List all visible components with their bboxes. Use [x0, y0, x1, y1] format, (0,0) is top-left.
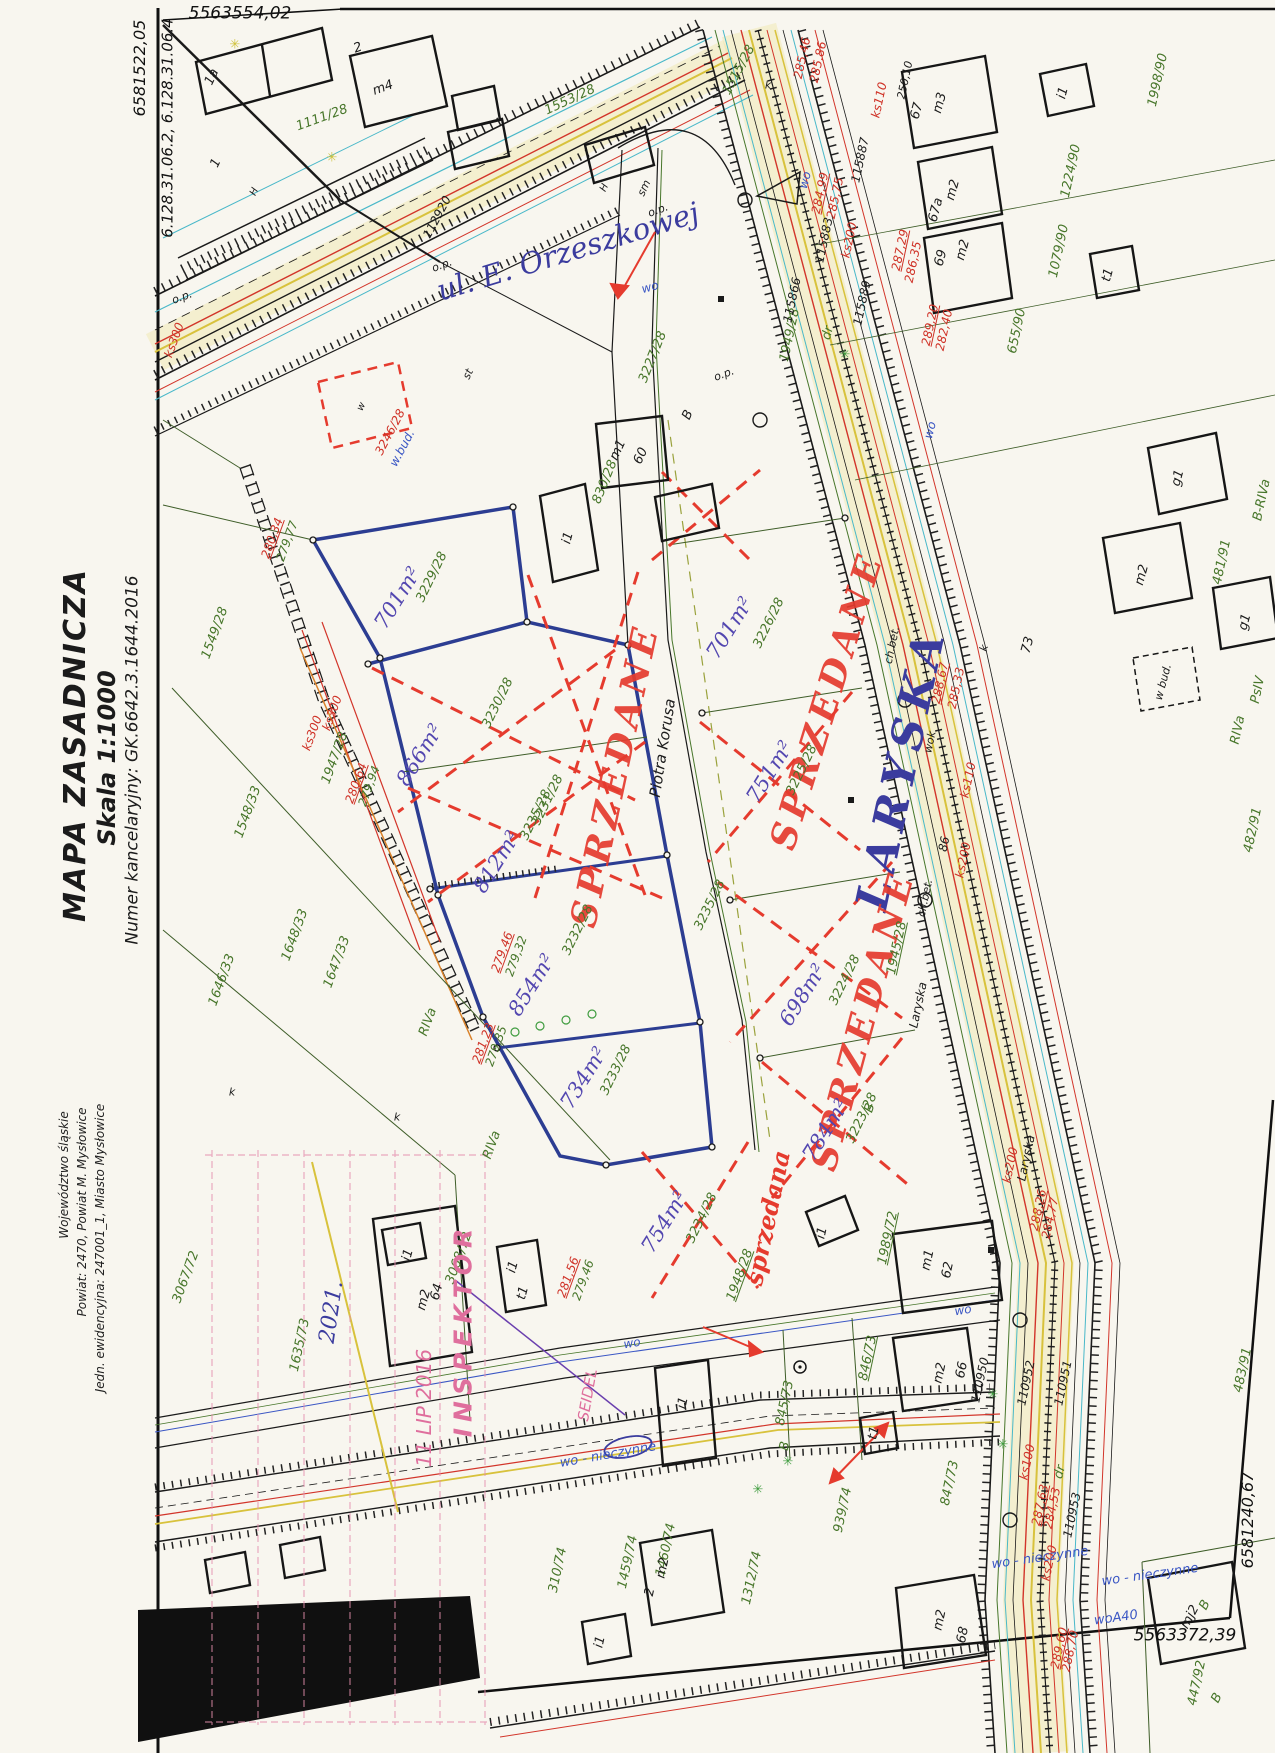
- survey-point: 115889: [851, 279, 872, 326]
- sheet-codes-left: 6.128.31.06.2, 6.128.31.06.4: [161, 18, 176, 237]
- land-use: B: [1209, 1691, 1225, 1705]
- parcel-number: 1459/74: [616, 1534, 640, 1590]
- map-symbol: w: [356, 401, 369, 413]
- land-use: RIVa: [417, 1006, 439, 1038]
- utility-label: ks110: [869, 81, 888, 119]
- building-label: m2: [654, 1556, 671, 1579]
- tree-symbol: ✳: [998, 1439, 1009, 1452]
- parcel-number: 1947/28: [320, 730, 351, 785]
- map-symbol: k: [394, 1112, 400, 1123]
- parcel-number: 310/74: [547, 1546, 569, 1593]
- land-use: B-RIVa: [1251, 478, 1273, 522]
- parcel-number: 481/91: [1211, 538, 1233, 585]
- parcel-number: 1312/74: [740, 1550, 764, 1606]
- map-symbol: 86: [937, 835, 952, 852]
- utility-label: wo: [797, 170, 813, 190]
- map-scale: Skala 1:1000: [95, 670, 119, 845]
- building-label: m3: [931, 91, 949, 115]
- map-annotation-layer: 5563554,026581522,056.128.31.06.2, 6.128…: [0, 0, 1275, 1753]
- land-use: B: [778, 1440, 793, 1451]
- utility-label: wo: [640, 279, 660, 295]
- parcel-number: 1635/73: [288, 1317, 312, 1373]
- area-label: 866m²: [393, 720, 447, 789]
- building-label: g1: [1237, 612, 1254, 631]
- building-label: m2: [931, 1361, 948, 1384]
- building-label: t1: [515, 1285, 531, 1301]
- tree-symbol: ✳: [988, 1389, 999, 1402]
- parcel-number: 482/91: [1242, 806, 1264, 853]
- utility-label: wo: [623, 1336, 642, 1351]
- area-label: 754m²: [638, 1187, 692, 1256]
- stamp-inspektor: INSPEKTOR: [451, 1223, 476, 1438]
- map-symbol: wok: [922, 730, 937, 754]
- parcel-number: 1549/28: [200, 605, 231, 660]
- parcel-number: 1646/33: [207, 952, 238, 1007]
- map-symbol: k: [229, 1087, 235, 1098]
- survey-point: 115887: [849, 136, 870, 183]
- area-label: 698m²: [776, 960, 830, 1029]
- map-symbol: k: [765, 80, 771, 91]
- building-label: 1a: [203, 67, 222, 87]
- parcel-number: 447/92: [1186, 1659, 1208, 1706]
- parcel-number: 1998/90: [1146, 52, 1170, 108]
- parcel-number: 846/73: [857, 1334, 879, 1381]
- parcel-number: 483/91: [1232, 1346, 1254, 1393]
- utility-label: wo: [954, 1303, 973, 1318]
- building-label: t1: [1100, 267, 1116, 283]
- street-name-laryska-small: Laryska: [907, 981, 928, 1029]
- municipality: Jedn. ewidencyjna: 247001_1, Miasto Mysł…: [94, 1104, 106, 1393]
- building-label: 69: [933, 248, 950, 267]
- doc-number: Numer kancelaryjny: GK.6642.3.1644.2016: [125, 575, 142, 944]
- corner-coord-right-bottom: 6581240,67: [1240, 1472, 1256, 1569]
- building-label: m2: [954, 238, 972, 262]
- parcel-number: 3227/28: [637, 330, 669, 385]
- building-label: 67a: [927, 196, 946, 223]
- building-label: i1: [505, 1260, 521, 1275]
- parcel-number: 1553/28: [543, 83, 597, 118]
- survey-point: 110952: [1015, 1359, 1036, 1406]
- map-title: MAPA ZASADNICZA: [61, 568, 91, 922]
- land-use: RIVa: [1229, 715, 1248, 746]
- utility-label: ks300: [320, 694, 344, 732]
- parcel-number: 1224/90: [1059, 143, 1083, 199]
- map-symbol: st: [461, 367, 475, 381]
- building-label: 2: [352, 40, 364, 55]
- map-symbol: o.p.: [170, 288, 193, 305]
- building-label: 66: [954, 1361, 970, 1380]
- building-label: m2: [1133, 563, 1151, 587]
- building-label: 62: [940, 1261, 956, 1280]
- building-label: m1: [608, 438, 629, 462]
- utility-label: ks110: [958, 761, 977, 799]
- building-label: 68: [955, 1626, 971, 1645]
- street-name-piotra-korusa: Piotra Korusa: [648, 698, 678, 799]
- parcel-number: 830/28: [590, 458, 619, 505]
- parcel-number: 3230/28: [480, 676, 515, 730]
- building-label: t1: [866, 1425, 881, 1441]
- building-label: 73: [1020, 635, 1037, 654]
- utility-label: ks100: [1017, 1443, 1036, 1481]
- tree-symbol: ✳: [783, 1456, 794, 1469]
- parcel-number: 1648/33: [280, 907, 311, 962]
- parcel-number: 1515/28: [721, 43, 758, 97]
- land-use: RIVa: [481, 1129, 503, 1161]
- corner-coord-bottom-right: 5563372,39: [1134, 1628, 1237, 1645]
- parcel-number: 1079/90: [1047, 223, 1071, 279]
- building-label: m2: [931, 1608, 948, 1631]
- utility-label: wo - nieczynne: [559, 1440, 657, 1470]
- voivodeship: Województwo śląskie: [58, 1111, 70, 1239]
- building-label: 67: [909, 101, 926, 120]
- utility-label: woA40: [1093, 1608, 1138, 1627]
- parcel-number: 3235/28: [692, 878, 727, 932]
- parcel-number: 847/73: [939, 1459, 961, 1506]
- building-label: m1: [919, 1248, 936, 1271]
- parcel-number: 1111/28: [294, 103, 349, 134]
- building-label: m4: [371, 78, 395, 97]
- parcel-number: 1548/33: [233, 784, 264, 839]
- utility-label: ks200: [839, 221, 858, 259]
- area-label: 701m²: [703, 593, 757, 662]
- building-label: i1: [1055, 86, 1071, 101]
- survey-point: 110951: [1052, 1359, 1073, 1406]
- building-label: i1: [400, 1248, 416, 1263]
- county: Powiat: 2470, Powiat M. Mysłowice: [76, 1107, 88, 1316]
- parcel-number: 655/90: [1006, 307, 1028, 354]
- tree-symbol: ✳: [753, 1484, 764, 1497]
- building-label: 2: [643, 1587, 657, 1598]
- area-label: 812m²: [470, 827, 524, 896]
- map-symbol: o.p.: [712, 365, 735, 382]
- utility-label: ks300: [300, 714, 324, 752]
- map-symbol: H: [249, 186, 261, 197]
- land-use: B: [680, 408, 696, 422]
- parcel-number: 845/73: [774, 1379, 796, 1426]
- building-label: 64: [429, 1282, 446, 1301]
- building-label: 1: [208, 157, 223, 170]
- handwritten-year: 2021.: [317, 1279, 348, 1344]
- utility-label: ks200: [953, 841, 972, 879]
- building-label: i1: [592, 1635, 607, 1649]
- map-symbol: H: [599, 182, 611, 193]
- building-label: i1: [560, 531, 576, 546]
- map-symbol: k: [978, 643, 990, 652]
- stamp-date: 11 LIP 2016: [414, 1349, 434, 1467]
- building-label: w bud.: [1153, 663, 1173, 702]
- elevation: 250,10: [896, 60, 915, 100]
- utility-label: wo - nieczynne: [1101, 1562, 1199, 1588]
- building-label: i1: [814, 1226, 829, 1240]
- survey-point: 110953: [1061, 1491, 1082, 1538]
- building-label: sm: [636, 178, 653, 198]
- tree-symbol: ✳: [840, 349, 851, 362]
- stamp-name: SEIDEL: [576, 1368, 600, 1423]
- tree-symbol: ✳: [230, 39, 241, 52]
- parcel-number: 1989/72: [876, 1210, 900, 1266]
- parcel-number: 3067/72: [171, 1249, 202, 1304]
- land-use: PsIV: [1249, 675, 1267, 704]
- scanned-map-page: 5563554,026581522,056.128.31.06.2, 6.128…: [0, 0, 1275, 1753]
- building-label: i1: [675, 1396, 690, 1410]
- survey-point: 112920: [421, 194, 453, 240]
- corner-coord-top-left: 5563554,02: [189, 6, 292, 23]
- corner-coord-left-top: 6581522,05: [132, 20, 148, 117]
- building-label: m2: [944, 178, 962, 202]
- land-use: dr: [820, 325, 836, 342]
- survey-point: 115883: [813, 216, 834, 263]
- parcel-number: 1647/33: [322, 934, 353, 989]
- tree-symbol: ✳: [327, 152, 338, 165]
- utility-label: wo: [922, 420, 938, 440]
- building-label: 60: [632, 446, 651, 466]
- utility-label: ks300: [162, 321, 186, 359]
- building-label: g1: [1170, 468, 1187, 487]
- parcel-number: 939/74: [832, 1486, 854, 1533]
- land-use: dr: [1052, 1464, 1068, 1481]
